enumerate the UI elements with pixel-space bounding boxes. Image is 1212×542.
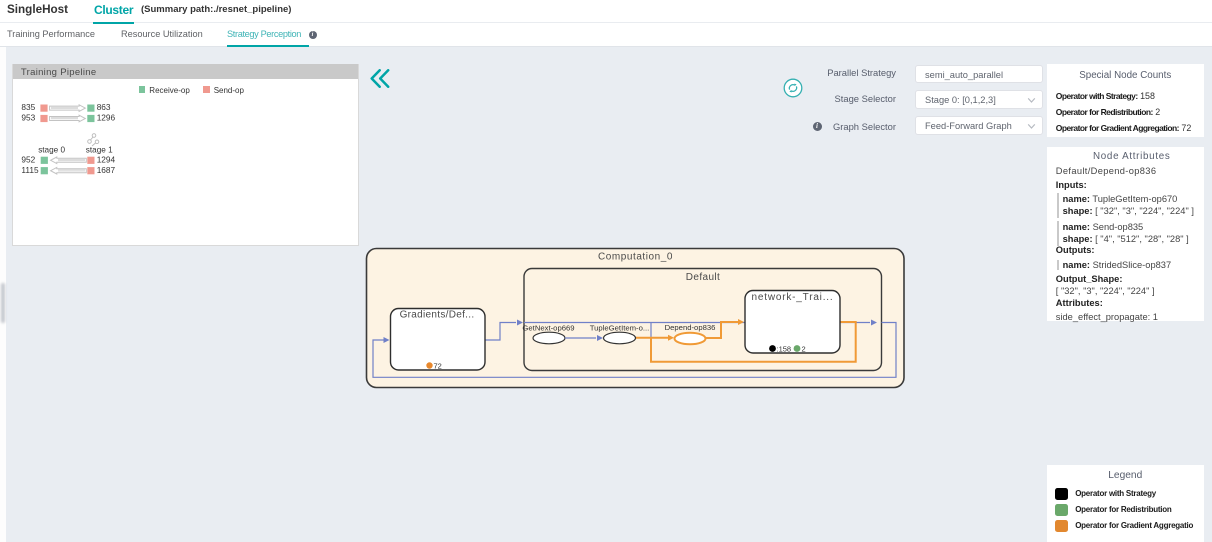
svg-text:Default: Default [686, 272, 721, 283]
svg-text:2: 2 [802, 344, 806, 353]
svg-text:TupleGetItem-o...: TupleGetItem-o... [590, 324, 650, 333]
svg-text:72: 72 [434, 361, 442, 370]
svg-text:Computation_0: Computation_0 [598, 252, 673, 263]
svg-text:1296: 1296 [97, 113, 116, 123]
svg-text:953: 953 [21, 113, 35, 123]
svg-text:952: 952 [21, 155, 35, 165]
svg-text:1294: 1294 [97, 155, 116, 165]
svg-text:1687: 1687 [97, 165, 116, 175]
svg-text:GetNext-op669: GetNext-op669 [522, 324, 574, 333]
svg-text:Depend-op836: Depend-op836 [665, 323, 716, 332]
svg-text::158: :158 [777, 344, 792, 353]
svg-text:stage 1: stage 1 [86, 145, 113, 154]
svg-text:Gradients/Def...: Gradients/Def... [400, 310, 475, 321]
svg-text:863: 863 [97, 102, 111, 112]
svg-text:network-_Trai...: network-_Trai... [752, 292, 834, 303]
svg-text:1115: 1115 [21, 165, 39, 175]
svg-text:835: 835 [21, 102, 35, 112]
svg-text:stage 0: stage 0 [38, 145, 65, 154]
